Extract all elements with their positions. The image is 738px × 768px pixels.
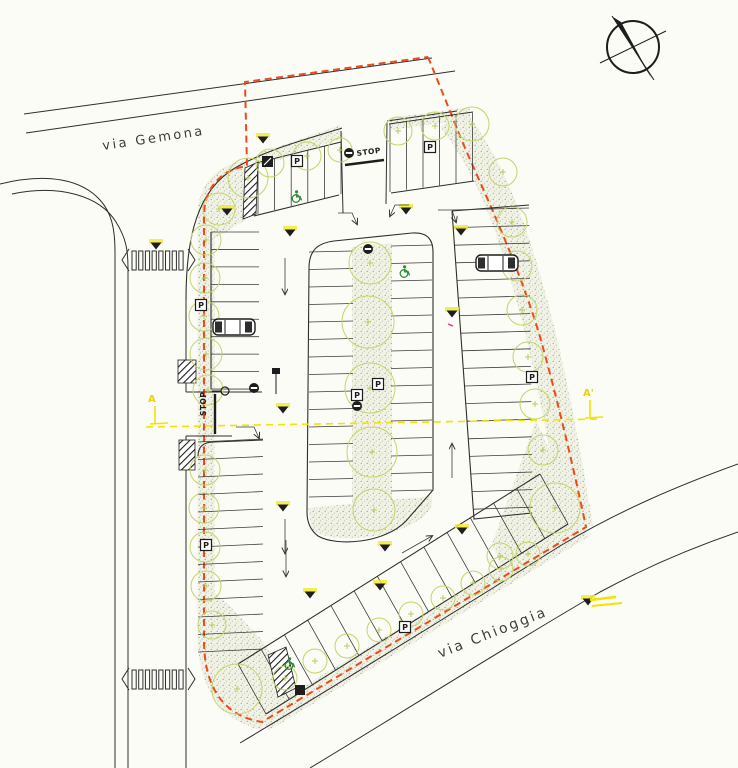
parking-sign: P	[400, 622, 411, 633]
stop-marking-top: STOP	[356, 146, 381, 158]
parking-sign: P	[201, 540, 212, 551]
crosswalk-stripe	[132, 251, 136, 270]
stall-divider	[391, 245, 432, 246]
stall-divider	[309, 391, 353, 392]
street-lamp-icon	[445, 307, 459, 318]
street-lamp-icon	[399, 204, 413, 215]
wheelchair-icon	[400, 265, 409, 277]
street-lamp-icon	[256, 133, 270, 144]
crosswalk-end	[188, 668, 195, 690]
no-entry-icon	[352, 401, 362, 411]
stall-divider	[391, 420, 432, 421]
crosswalk-stripe	[139, 670, 143, 689]
stall-divider	[354, 591, 382, 641]
stall-divider	[309, 461, 353, 462]
stall-divider	[309, 479, 353, 480]
crosswalk-stripe	[145, 251, 149, 270]
street-lamp-icon	[149, 239, 163, 250]
stall-divider	[309, 426, 353, 427]
stall-divider	[463, 366, 530, 368]
site-plan-svg: PPPPPPPP A A' via Gemona via Chioggia ST…	[0, 0, 738, 768]
crosswalk-stripe	[159, 251, 163, 270]
no-entry-icon	[344, 148, 354, 158]
stall-divider	[309, 251, 353, 252]
crosswalk-stripe	[139, 251, 143, 270]
crosswalk-stripe	[152, 251, 156, 270]
section-label-a: A	[148, 394, 156, 405]
annotation-scribble	[590, 597, 622, 606]
crosswalk-stripe	[152, 670, 156, 689]
stop-marking-west: STOP	[199, 392, 208, 416]
stall-divider	[391, 368, 432, 369]
stall-divider	[391, 403, 432, 404]
stall-divider	[309, 304, 353, 305]
stall-divider	[391, 298, 432, 299]
north-arrow-icon	[600, 16, 666, 80]
parking-sign-label: P	[198, 301, 204, 310]
crosswalk-stripe	[166, 670, 170, 689]
stall-divider	[462, 349, 531, 351]
stall-divider	[309, 356, 353, 357]
parking-sign: P	[196, 300, 207, 311]
street-lamp-icon	[303, 588, 317, 599]
parking-sign: P	[527, 372, 538, 383]
parking-sign-label: P	[529, 373, 535, 382]
car-icon	[476, 255, 518, 271]
parking-sign: P	[292, 156, 303, 167]
stall-divider	[391, 350, 432, 351]
stall-divider	[391, 280, 432, 281]
stall-divider	[391, 473, 432, 474]
tree-icon	[303, 649, 327, 673]
stall-divider	[470, 454, 532, 456]
stall-divider	[391, 385, 432, 386]
parking-sign-label: P	[294, 157, 300, 166]
parking-sign: P	[425, 142, 436, 153]
street-lamp-icon	[276, 403, 290, 414]
crosswalk-stripe	[166, 251, 170, 270]
no-entry-icon	[249, 383, 259, 393]
stall-divider	[391, 438, 432, 439]
green-strips	[206, 113, 584, 722]
crosswalk-stripe	[145, 670, 149, 689]
car-icon	[213, 319, 255, 335]
survey-tick	[448, 324, 453, 326]
stall-divider	[309, 339, 353, 340]
stall-divider	[391, 263, 432, 264]
crosswalk-stripe	[132, 670, 136, 689]
street-lamp-icon	[378, 541, 392, 552]
street-lamp-icon	[276, 501, 290, 512]
parking-sign: P	[373, 379, 384, 390]
stall-divider	[447, 532, 475, 582]
parking-sign: P	[352, 390, 363, 401]
stall-divider	[309, 444, 353, 445]
stall-divider	[465, 384, 531, 386]
stall-divider	[391, 490, 432, 491]
stall-divider	[309, 269, 353, 270]
crosswalk-stripe	[179, 670, 183, 689]
parking-sign-label: P	[354, 391, 360, 400]
street-lamp-icon	[283, 226, 297, 237]
stall-divider	[461, 331, 531, 333]
stall-divider	[309, 374, 353, 375]
section-label-a-prime: A'	[583, 388, 594, 399]
crosswalk-stripe	[179, 251, 183, 270]
parking-sign-label: P	[402, 623, 408, 632]
parking-sign-label: P	[203, 541, 209, 550]
stall-divider	[308, 620, 336, 670]
parking-sign-label: P	[375, 380, 381, 389]
street-lamp-icon	[455, 524, 469, 535]
stall-divider	[309, 496, 353, 497]
stall-divider	[466, 402, 531, 404]
site-plan-drawing: PPPPPPPP A A' via Gemona via Chioggia ST…	[0, 0, 738, 768]
stall-divider	[309, 321, 353, 322]
stall-divider	[391, 315, 432, 316]
signboard-icon	[295, 685, 305, 695]
stall-divider	[309, 409, 353, 410]
stall-divider	[309, 286, 353, 287]
tree-icon	[335, 634, 359, 658]
tree-icon	[367, 618, 391, 642]
stall-divider	[468, 437, 531, 439]
crosswalk-stripe	[172, 251, 176, 270]
parking-sign-label: P	[427, 143, 433, 152]
street-lamp-icon	[454, 225, 468, 236]
wheelchair-icon	[292, 190, 301, 202]
crosswalk-stripe	[159, 670, 163, 689]
stall-divider	[460, 314, 531, 316]
no-entry-icon	[363, 244, 373, 254]
stall-divider	[424, 547, 452, 597]
stall-divider	[391, 333, 432, 334]
street-label-gemona: via Gemona	[101, 124, 205, 154]
crosswalk-stripe	[172, 670, 176, 689]
